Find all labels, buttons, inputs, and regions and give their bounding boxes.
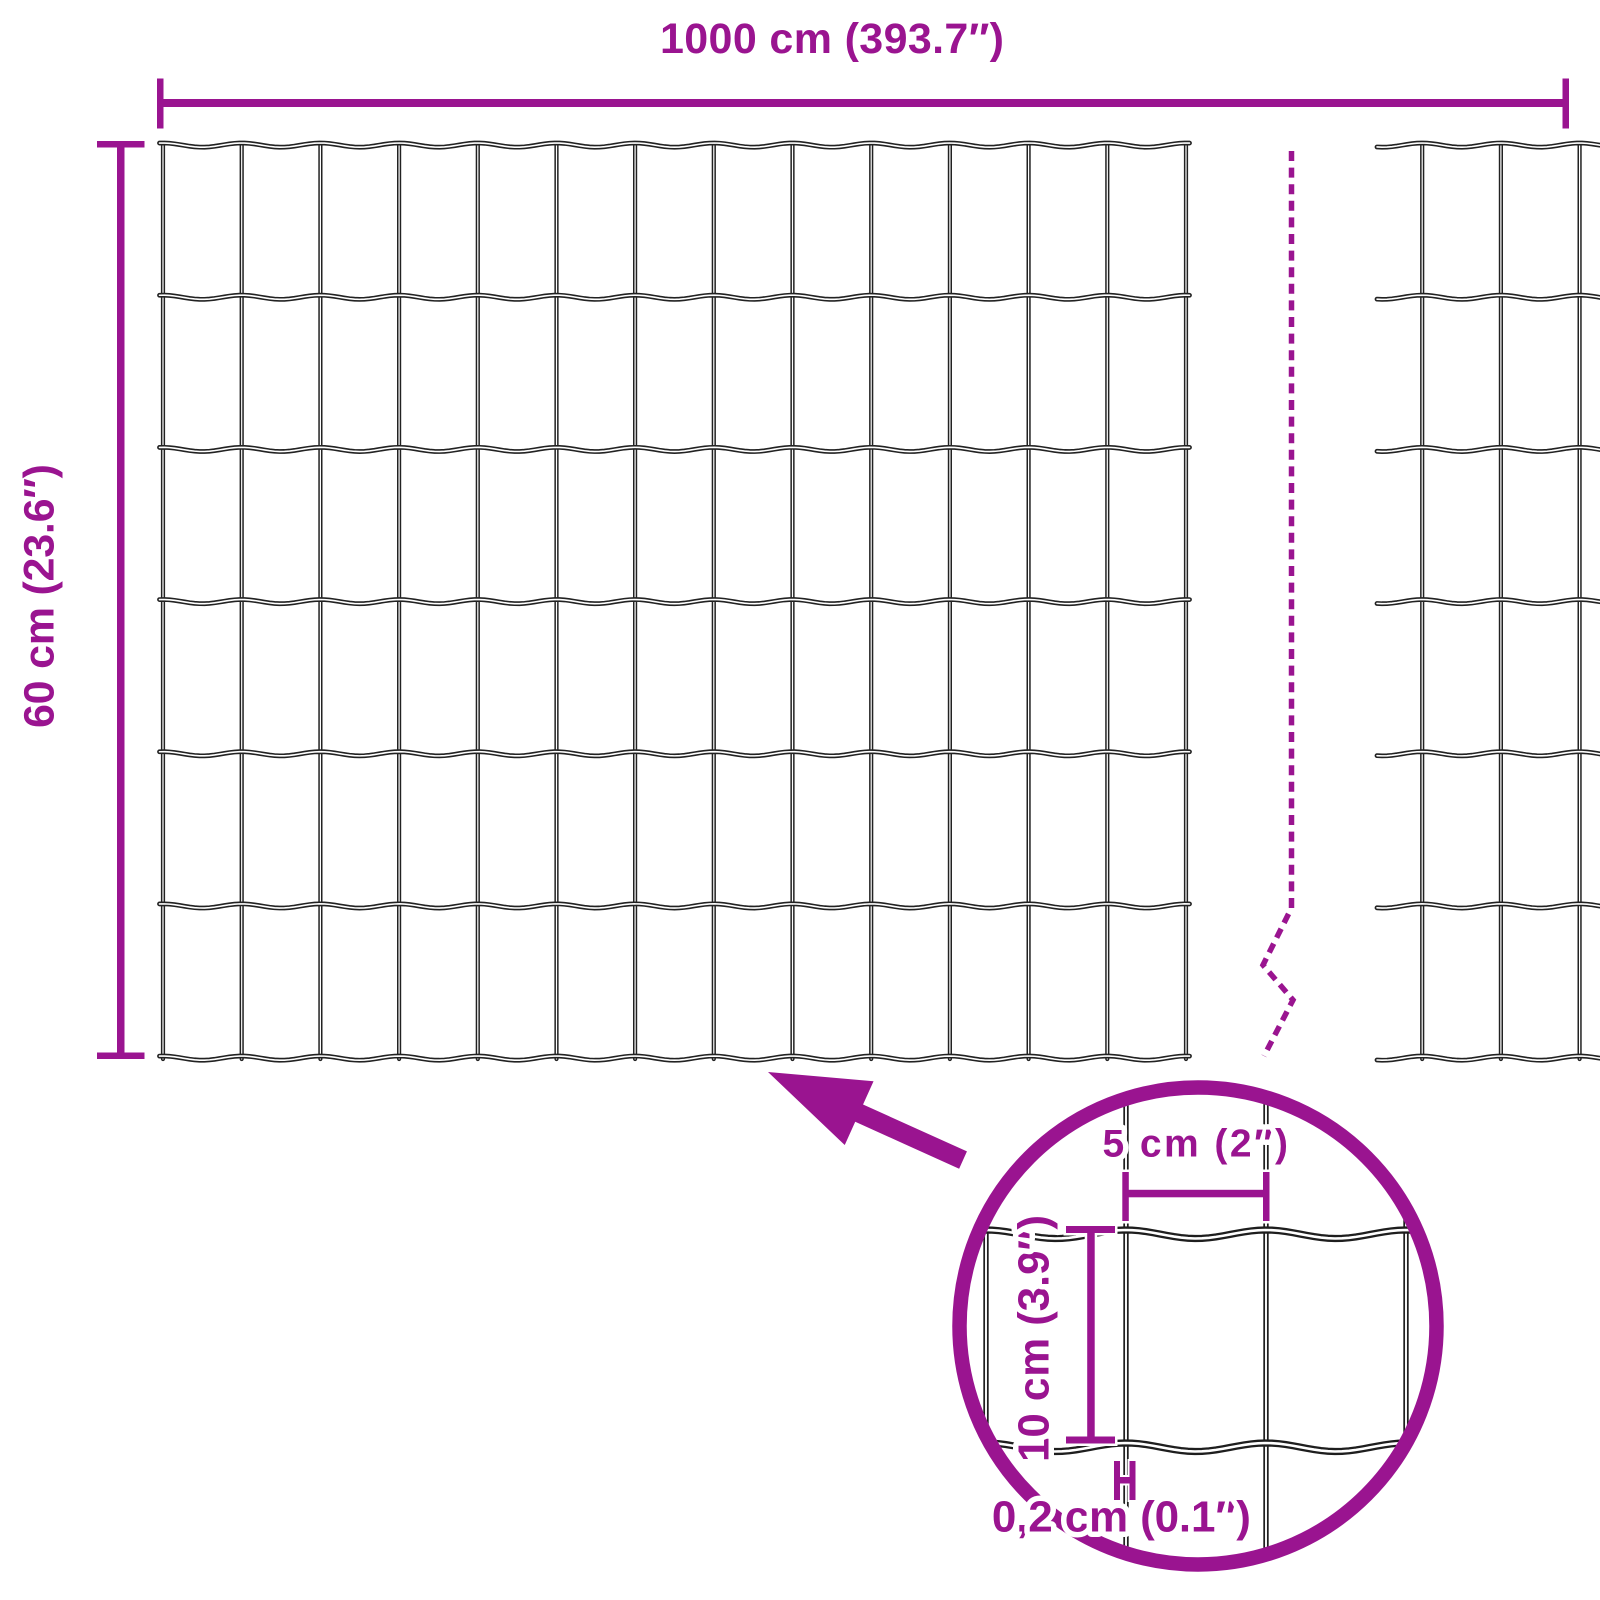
svg-text:1000 cm (393.7″): 1000 cm (393.7″) [660,15,1004,63]
svg-text:0,2 cm (0.1″): 0,2 cm (0.1″) [992,1493,1251,1542]
svg-text:5 cm (2″): 5 cm (2″) [1103,1123,1289,1166]
svg-text:10 cm (3.9″): 10 cm (3.9″) [1010,1215,1059,1462]
svg-text:60 cm (23.6″): 60 cm (23.6″) [15,464,63,728]
